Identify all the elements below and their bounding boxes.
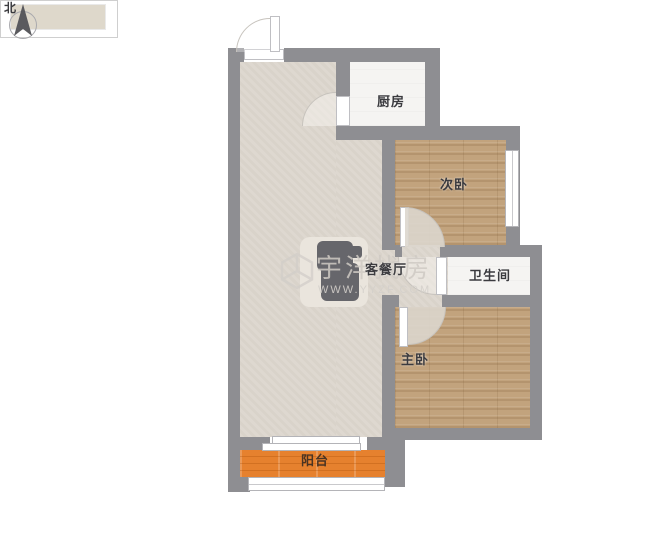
- wall: [382, 300, 395, 437]
- wall: [228, 48, 240, 492]
- master-bedroom-door: [399, 307, 408, 347]
- sofa: [321, 263, 359, 301]
- wall: [442, 295, 530, 307]
- wall: [228, 477, 250, 492]
- wall: [382, 428, 542, 440]
- entrance-door-swing-arc: [236, 18, 270, 52]
- north-label: 北: [4, 0, 16, 16]
- wall: [382, 140, 395, 250]
- living-dining-room-label: 客餐厅: [361, 259, 411, 278]
- wall: [382, 295, 399, 307]
- wall: [336, 126, 520, 140]
- secondary-bedroom-window: [505, 150, 519, 227]
- kitchen-label: 厨房: [369, 91, 413, 110]
- wall: [336, 62, 350, 98]
- bathroom-door: [436, 257, 447, 295]
- master-bedroom-label: 主卧: [393, 349, 437, 368]
- wall: [440, 245, 530, 257]
- entrance-door: [270, 16, 280, 52]
- wall: [284, 48, 440, 62]
- north-compass: 北: [0, 0, 46, 46]
- secondary-bedroom-label: 次卧: [432, 174, 476, 193]
- wall: [530, 245, 542, 440]
- wall: [385, 435, 405, 487]
- floor-plan: 北: [0, 0, 663, 544]
- balcony-label: 阳台: [293, 450, 337, 469]
- kitchen-door: [336, 96, 350, 126]
- balcony-window: [248, 477, 385, 491]
- bathroom-label: 卫生间: [461, 265, 519, 284]
- sofa: [350, 246, 362, 258]
